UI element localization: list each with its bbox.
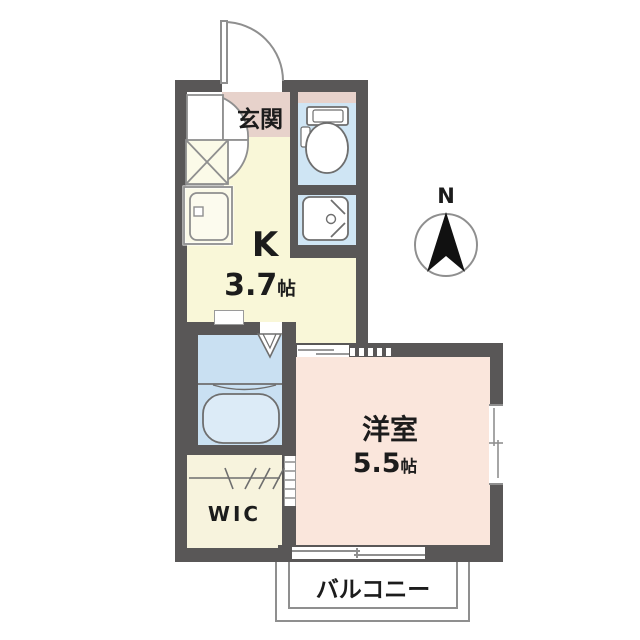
kitchen-label: K <box>200 228 330 262</box>
wall-bottom-left <box>175 548 290 562</box>
western-top-window <box>350 348 395 356</box>
kitchen-area-label: 3.7帖 <box>190 268 330 303</box>
entrance-door-icon <box>221 21 283 83</box>
room-entrance-strip <box>298 92 356 103</box>
western-room-area-value: 5.5 <box>353 448 401 479</box>
room-toilet <box>298 103 356 185</box>
wall-bath-wic <box>187 445 282 455</box>
entrance-label: 玄関 <box>222 100 298 134</box>
bath-door-opening <box>260 322 282 335</box>
entrance-door-opening <box>222 80 282 92</box>
wic-door <box>284 456 296 506</box>
wall-bath-left <box>187 322 198 455</box>
bath-doorway-notch <box>214 310 244 325</box>
western-room-area-label: 5.5帖 <box>315 448 455 479</box>
balcony-label: バルコニー <box>288 570 458 604</box>
wall-mid-vertical <box>282 322 296 562</box>
kitchen-western-sliding-door <box>297 345 349 357</box>
compass-n-label: N <box>410 184 482 208</box>
wall-toilet-washbasin <box>298 185 356 195</box>
western-side-window <box>489 404 503 485</box>
wall-right-upper <box>356 80 368 345</box>
kitchen-area-value: 3.7 <box>224 268 277 303</box>
wall-left <box>175 80 187 562</box>
compass-icon <box>415 212 477 276</box>
western-room-label: 洋室 <box>320 408 460 448</box>
wic-label: WIC <box>187 502 282 526</box>
kitchen-area-unit: 帖 <box>277 279 296 300</box>
balcony-sliding-door <box>292 547 425 559</box>
room-bath <box>198 335 282 445</box>
western-room-area-unit: 帖 <box>401 456 418 476</box>
floor-plan-canvas: 玄関 K 3.7帖 洋室 5.5帖 WIC バルコニー N <box>0 0 640 640</box>
